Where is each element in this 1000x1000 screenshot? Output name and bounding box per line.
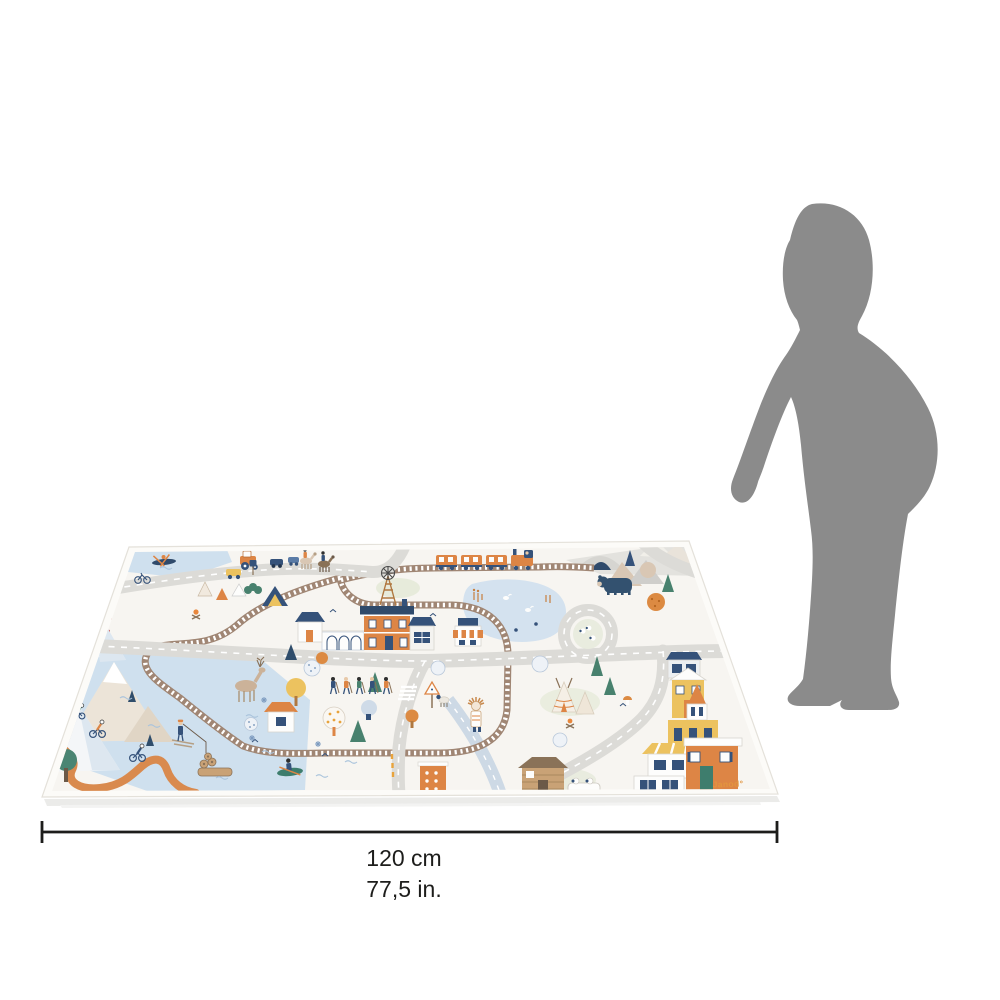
dimension-annotation bbox=[42, 821, 777, 843]
trunk bbox=[411, 721, 414, 728]
station-roof bbox=[360, 606, 414, 615]
child-silhouette bbox=[731, 203, 938, 710]
reed-top bbox=[477, 590, 479, 592]
tree-icon bbox=[47, 723, 58, 734]
trunk bbox=[366, 714, 371, 720]
sheep-head bbox=[572, 780, 575, 783]
scene-canvas: Janod° 120 cm 77,5 in. bbox=[0, 0, 1000, 1000]
reed-top bbox=[473, 589, 475, 591]
swan-icon bbox=[503, 596, 509, 600]
mat-illustration: Janod° bbox=[44, 540, 770, 795]
window bbox=[672, 760, 684, 770]
tree-icon bbox=[286, 678, 306, 698]
house-door bbox=[306, 630, 313, 642]
window bbox=[676, 686, 684, 694]
product-size-image: Janod° 120 cm 77,5 in. bbox=[0, 0, 1000, 1000]
tree-icon bbox=[361, 700, 377, 716]
shutter bbox=[730, 752, 733, 762]
roof-band bbox=[418, 762, 448, 766]
tree-icon bbox=[640, 562, 656, 578]
orange-roof-house bbox=[264, 702, 298, 732]
awning-stripes bbox=[458, 630, 478, 638]
toddler-silhouette-shape bbox=[731, 203, 938, 710]
sheep-head bbox=[586, 780, 589, 783]
dimension-label-in: 77,5 in. bbox=[366, 876, 441, 902]
trunk bbox=[333, 727, 336, 736]
chimney bbox=[402, 599, 407, 607]
window bbox=[720, 752, 730, 762]
shop-upper-window bbox=[458, 618, 478, 626]
brand-text: Janod° bbox=[712, 778, 743, 789]
window bbox=[672, 664, 682, 673]
tree-icon bbox=[245, 718, 258, 731]
tree-icon bbox=[532, 656, 548, 672]
belfry bbox=[687, 704, 707, 720]
window bbox=[276, 717, 286, 726]
shutter bbox=[688, 752, 691, 762]
station-door bbox=[385, 636, 393, 650]
window bbox=[674, 728, 682, 741]
window bbox=[690, 752, 700, 762]
tree-icon bbox=[647, 593, 665, 611]
shop-window bbox=[459, 640, 465, 645]
eave bbox=[360, 615, 414, 617]
house-roof bbox=[666, 652, 702, 660]
cabin-window bbox=[526, 771, 534, 778]
dimension-label-cm: 120 cm bbox=[366, 845, 441, 871]
tree-icon bbox=[431, 661, 445, 675]
teal-door bbox=[700, 766, 713, 793]
trunk bbox=[295, 696, 298, 706]
roundabout-green bbox=[573, 619, 603, 649]
train-wagons bbox=[436, 555, 507, 567]
trim bbox=[364, 632, 410, 634]
swan-icon bbox=[525, 608, 531, 612]
duck-icon bbox=[534, 622, 538, 626]
roof-band bbox=[684, 738, 742, 746]
window bbox=[654, 760, 666, 770]
belfry-slot bbox=[699, 707, 703, 716]
platform bbox=[322, 632, 364, 650]
belfry-slot bbox=[691, 707, 695, 716]
tree-icon bbox=[316, 652, 328, 664]
tree-icon bbox=[553, 733, 567, 747]
tree-icon bbox=[406, 710, 419, 723]
shop-window bbox=[470, 640, 476, 645]
tree-icon bbox=[304, 660, 320, 676]
trunk bbox=[64, 768, 68, 782]
tree-icon bbox=[323, 707, 345, 729]
play-mat: Janod° bbox=[42, 540, 780, 808]
duck-icon bbox=[514, 628, 518, 632]
road-warning-marks bbox=[392, 754, 393, 777]
